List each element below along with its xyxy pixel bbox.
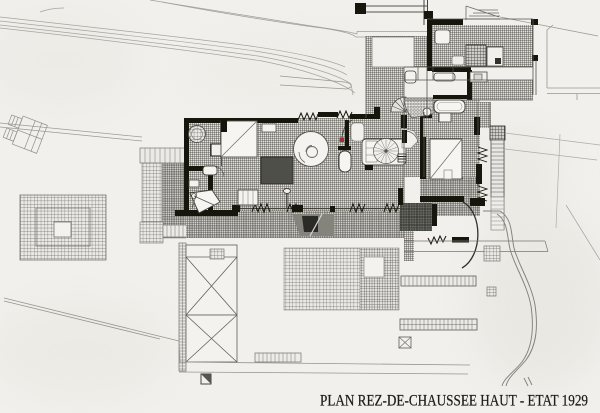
- svg-text:PLAN REZ-DE-CHAUSSEE HAUT -: PLAN REZ-DE-CHAUSSEE HAUT - ETAT 1929: [320, 393, 588, 410]
